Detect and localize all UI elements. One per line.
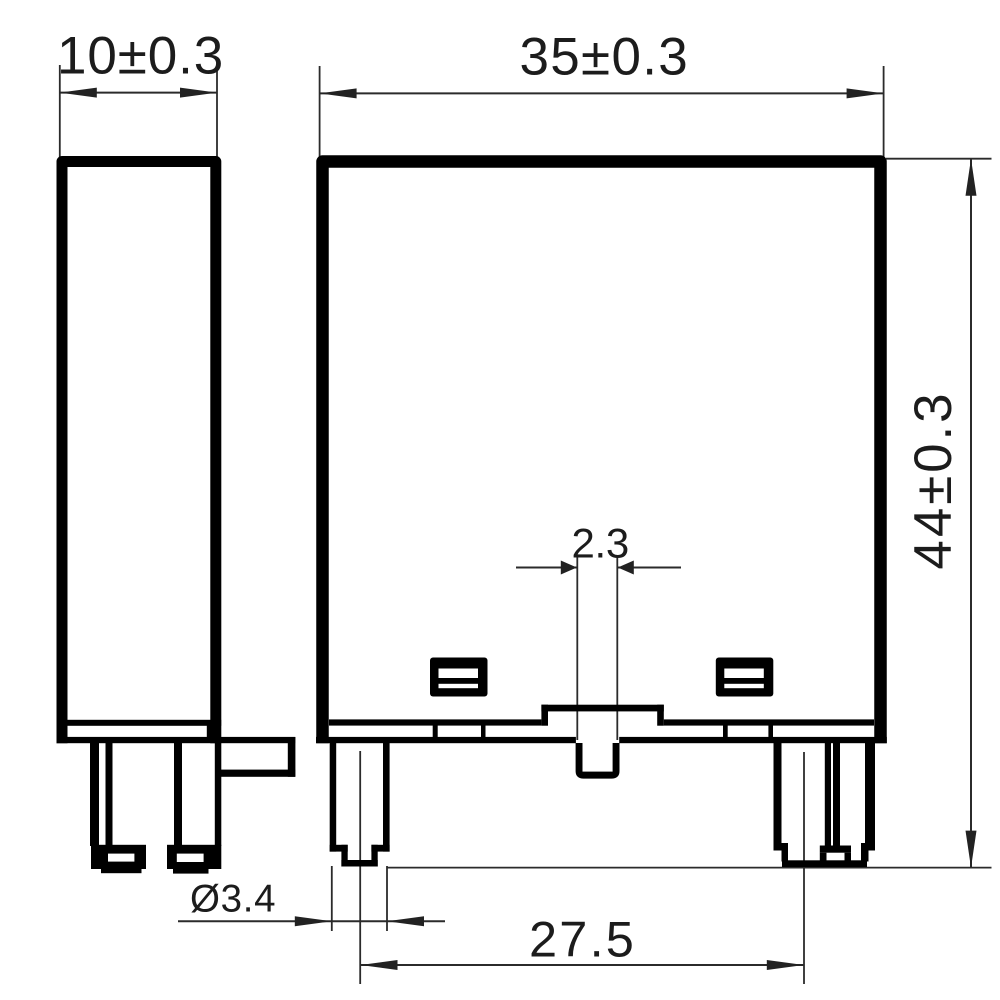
- svg-text:Ø3.4: Ø3.4: [190, 878, 276, 921]
- svg-text:44±0.3: 44±0.3: [904, 390, 963, 569]
- svg-text:27.5: 27.5: [529, 911, 636, 968]
- svg-text:35±0.3: 35±0.3: [520, 28, 690, 87]
- svg-text:2.3: 2.3: [572, 520, 630, 567]
- svg-text:10±0.3: 10±0.3: [57, 27, 224, 86]
